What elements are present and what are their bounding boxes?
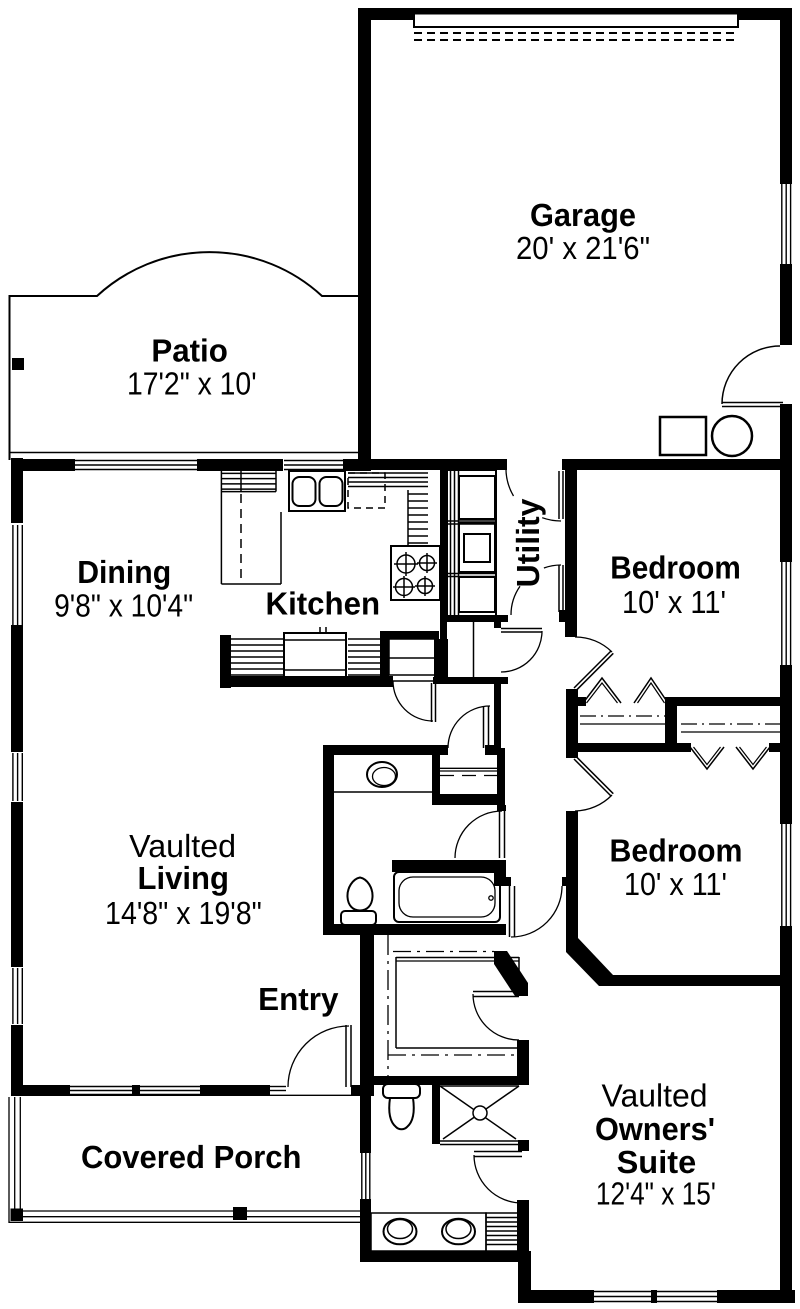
svg-text:10' x 11': 10' x 11' <box>624 866 727 902</box>
svg-text:Suite: Suite <box>617 1144 697 1180</box>
svg-text:Bedroom: Bedroom <box>610 833 743 869</box>
svg-text:Kitchen: Kitchen <box>266 586 381 622</box>
svg-text:20' x 21'6": 20' x 21'6" <box>516 230 650 266</box>
svg-text:Utility: Utility <box>510 498 546 587</box>
svg-text:Owners': Owners' <box>595 1111 715 1147</box>
svg-text:Bedroom: Bedroom <box>610 550 741 586</box>
svg-text:9'8" x 10'4": 9'8" x 10'4" <box>54 588 193 624</box>
svg-text:Dining: Dining <box>77 554 171 590</box>
svg-text:Living: Living <box>138 860 229 896</box>
svg-text:Entry: Entry <box>258 981 339 1017</box>
svg-text:Garage: Garage <box>530 197 636 233</box>
svg-text:17'2" x 10': 17'2" x 10' <box>127 366 257 402</box>
svg-text:14'8" x 19'8": 14'8" x 19'8" <box>105 895 262 931</box>
svg-text:Vaulted: Vaulted <box>129 828 236 864</box>
svg-text:10' x 11': 10' x 11' <box>622 584 726 620</box>
svg-text:12'4" x 15': 12'4" x 15' <box>596 1176 716 1212</box>
svg-text:Covered Porch: Covered Porch <box>81 1139 302 1175</box>
svg-text:Patio: Patio <box>151 333 228 369</box>
svg-text:Vaulted: Vaulted <box>602 1078 708 1114</box>
